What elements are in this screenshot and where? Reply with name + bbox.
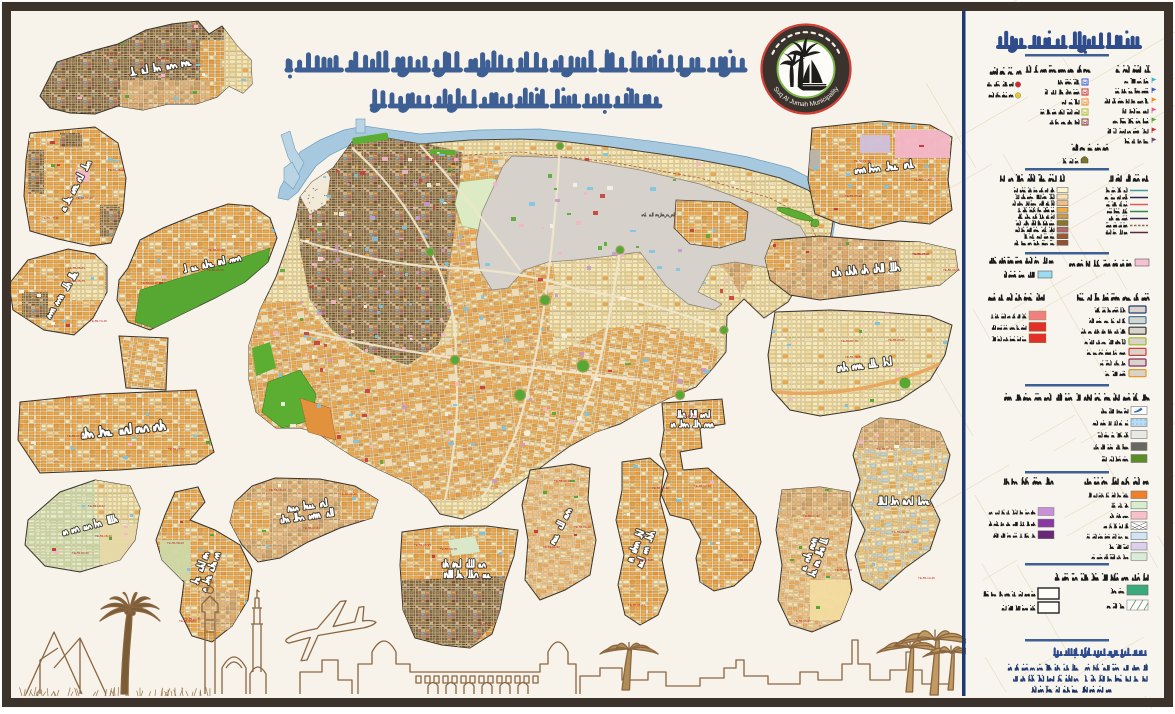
svg-text:TE-55-18-20: TE-55-18-20	[95, 534, 112, 538]
svg-text:H: H	[1083, 90, 1087, 96]
svg-text:H: H	[1083, 110, 1087, 116]
svg-text:TE-55-78-11: TE-55-78-11	[913, 252, 930, 256]
svg-text:TE-55-66-93: TE-55-66-93	[735, 558, 752, 562]
svg-text:TE-55-90-16: TE-55-90-16	[72, 551, 89, 555]
svg-text:TE-55-48-28: TE-55-48-28	[108, 168, 125, 172]
svg-text:TE-55-45-78: TE-55-45-78	[68, 279, 85, 283]
svg-text:TE-55-69-48: TE-55-69-48	[574, 525, 591, 529]
svg-text:TE-55-77-11: TE-55-77-11	[42, 216, 59, 220]
svg-text:H: H	[1083, 100, 1087, 106]
svg-text:TE-55-88-42: TE-55-88-42	[652, 486, 669, 490]
svg-text:TE-55-82-79: TE-55-82-79	[440, 547, 457, 551]
svg-text:TE-55-36-81: TE-55-36-81	[914, 178, 931, 182]
svg-text:TE-55-13-25: TE-55-13-25	[918, 576, 935, 580]
svg-text:TE-55-74-15: TE-55-74-15	[90, 319, 107, 323]
svg-text:TE-55-84-30: TE-55-84-30	[683, 414, 700, 418]
svg-text:TE-55-66-91: TE-55-66-91	[543, 545, 560, 549]
svg-text:TE-55-17-46: TE-55-17-46	[76, 196, 93, 200]
svg-text:TE-55-26-76: TE-55-26-76	[207, 268, 224, 272]
svg-text:TE-55-85-18: TE-55-85-18	[845, 194, 862, 198]
svg-text:TE-55-67-19: TE-55-67-19	[877, 447, 894, 451]
svg-text:TE-55-29-20: TE-55-29-20	[66, 395, 83, 399]
svg-text:TE-55-23-65: TE-55-23-65	[888, 338, 905, 342]
svg-text:TE-55-37-56: TE-55-37-56	[67, 434, 84, 438]
svg-text:TE-55-97-89: TE-55-97-89	[208, 248, 225, 252]
svg-text:TE-55-38-23: TE-55-38-23	[167, 541, 184, 545]
svg-text:TE-55-18-13: TE-55-18-13	[269, 488, 286, 492]
svg-text:TE-55-47-84: TE-55-47-84	[303, 526, 320, 530]
svg-text:TE-55-66-95: TE-55-66-95	[414, 543, 431, 547]
svg-text:TE-55-86-62: TE-55-86-62	[170, 48, 187, 52]
svg-text:TE-55-34-32: TE-55-34-32	[803, 514, 820, 518]
svg-text:H: H	[1083, 80, 1087, 86]
svg-text:TE-55-69-42: TE-55-69-42	[88, 504, 105, 508]
svg-text:TE-55-87-76: TE-55-87-76	[841, 339, 858, 343]
svg-text:TE-55-41-44: TE-55-41-44	[628, 603, 645, 607]
svg-text:TE-55-93-39: TE-55-93-39	[141, 281, 158, 285]
svg-text:TE-55-60-10: TE-55-60-10	[694, 484, 711, 488]
svg-text:TE-55-96-35: TE-55-96-35	[943, 268, 960, 272]
svg-text:TE-55-95-18: TE-55-95-18	[835, 568, 852, 572]
svg-text:H: H	[1083, 120, 1087, 126]
svg-text:TE-55-38-64: TE-55-38-64	[179, 619, 196, 623]
svg-text:TE-55-78-81: TE-55-78-81	[845, 355, 862, 359]
svg-text:TE-55-46-91: TE-55-46-91	[794, 619, 811, 623]
svg-text:TE-55-26-83: TE-55-26-83	[637, 558, 654, 562]
svg-text:TE-55-40-36: TE-55-40-36	[554, 479, 571, 483]
svg-text:TE-55-42-98: TE-55-42-98	[892, 530, 909, 534]
svg-text:TE-55-98-84: TE-55-98-84	[68, 266, 85, 270]
svg-text:TE-55-31-50: TE-55-31-50	[105, 52, 122, 56]
svg-text:TE-55-39-35: TE-55-39-35	[340, 492, 357, 496]
svg-text:TE-55-17-57: TE-55-17-57	[168, 447, 185, 451]
svg-text:TE-55-20-77: TE-55-20-77	[478, 622, 495, 626]
svg-text:TE-55-28-51: TE-55-28-51	[156, 57, 173, 61]
svg-text:TE-55-72-38: TE-55-72-38	[854, 159, 871, 163]
